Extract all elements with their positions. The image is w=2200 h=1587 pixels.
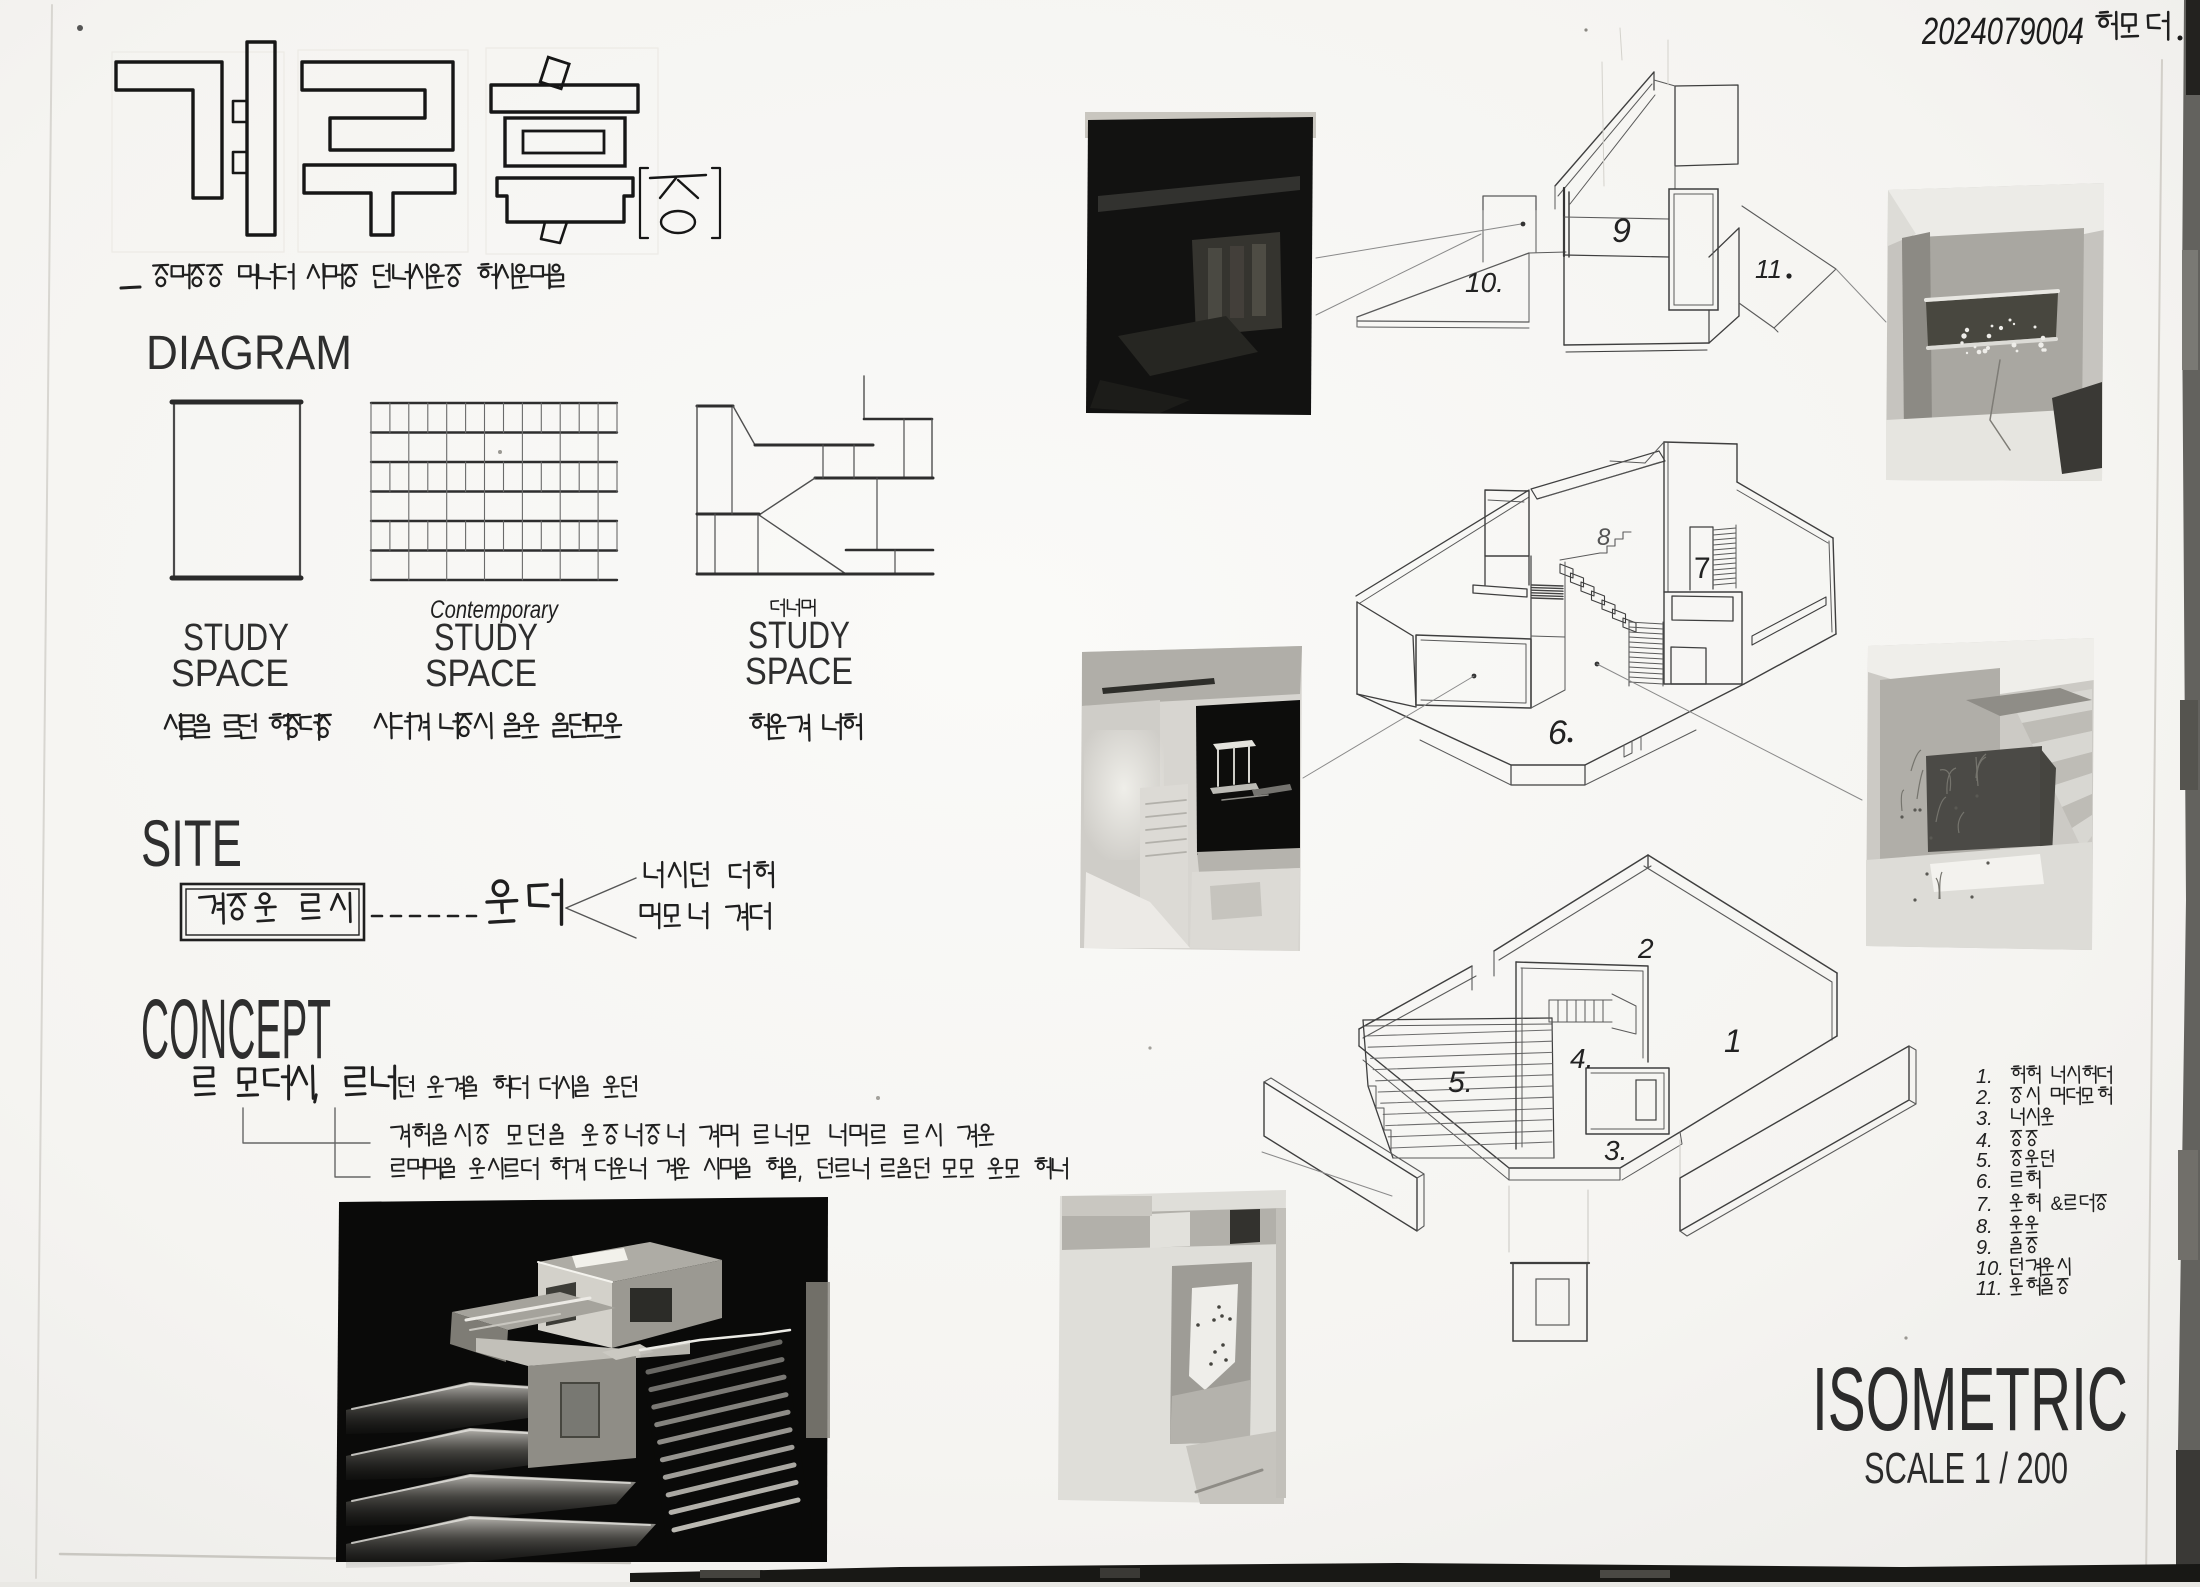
svg-text:10.: 10.: [1465, 267, 1504, 298]
svg-text:6: 6: [1548, 714, 1567, 752]
svg-text:8.: 8.: [1976, 1216, 1993, 1238]
svg-text:ISOMETRIC: ISOMETRIC: [1812, 1350, 2128, 1450]
svg-text:11: 11: [1755, 254, 1782, 284]
svg-text:2024079004: 2024079004: [1921, 11, 2084, 53]
svg-text:11.: 11.: [1976, 1278, 2002, 1300]
svg-text:5.: 5.: [1976, 1150, 1993, 1172]
svg-text:10.: 10.: [1976, 1258, 2004, 1280]
svg-text:5.: 5.: [1448, 1066, 1473, 1099]
svg-text:2.: 2.: [1975, 1087, 1993, 1109]
svg-text:1: 1: [1724, 1023, 1742, 1059]
svg-text:3.: 3.: [1604, 1135, 1627, 1166]
svg-text:SPACE: SPACE: [425, 653, 537, 695]
svg-text:4.: 4.: [1570, 1043, 1593, 1074]
svg-text:SPACE: SPACE: [745, 651, 853, 693]
svg-text:3.: 3.: [1976, 1108, 1993, 1130]
svg-text:2: 2: [1637, 933, 1654, 964]
svg-text:SPACE: SPACE: [171, 653, 289, 695]
svg-text:SCALE 1 / 200: SCALE 1 / 200: [1864, 1444, 2068, 1493]
svg-text:SITE: SITE: [141, 806, 242, 880]
svg-text:4.: 4.: [1976, 1130, 1993, 1152]
svg-text:1.: 1.: [1976, 1066, 1993, 1088]
svg-text:6.: 6.: [1976, 1171, 1993, 1193]
svg-text:9.: 9.: [1976, 1237, 1993, 1259]
svg-text:DIAGRAM: DIAGRAM: [146, 327, 352, 380]
svg-text:7: 7: [1694, 552, 1711, 585]
svg-text:&: &: [2051, 1194, 2064, 1215]
svg-text:7.: 7.: [1976, 1194, 1993, 1216]
svg-text:9: 9: [1612, 212, 1631, 250]
svg-text:CONCEPT: CONCEPT: [141, 982, 331, 1076]
svg-text:8: 8: [1597, 524, 1611, 551]
